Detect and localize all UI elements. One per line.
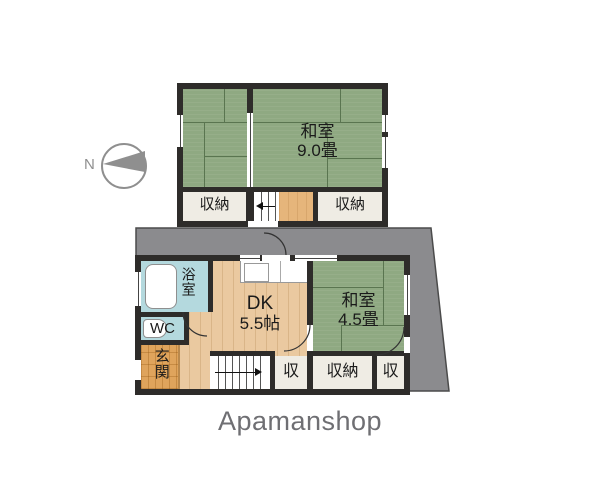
floor2-hall bbox=[279, 192, 313, 221]
floor1-window-top-a bbox=[240, 255, 260, 261]
mat-line bbox=[340, 89, 341, 122]
floor1-dk-size: 5.5帖 bbox=[220, 314, 300, 333]
floor1-window-top-b bbox=[295, 255, 337, 261]
floor2-window-left bbox=[177, 115, 183, 147]
floor1-window-left bbox=[135, 272, 141, 306]
mat-line bbox=[183, 122, 247, 123]
stairs-direction-arrow bbox=[255, 368, 262, 376]
wc-right-wall bbox=[184, 312, 189, 345]
floor2-storage-left-label: 収納 bbox=[183, 197, 246, 214]
kitchen-sink-icon bbox=[244, 263, 269, 282]
floor2-plan: 和室 9.0畳 収納 収納 bbox=[177, 83, 388, 227]
floor1-dk-label: DK 5.5帖 bbox=[220, 293, 300, 333]
compass-circle bbox=[102, 144, 146, 188]
bath-wall bbox=[208, 261, 213, 312]
entrance-door-arc bbox=[264, 233, 286, 255]
floor1-door-top-gap bbox=[262, 255, 290, 261]
floor1-entry-door-gap bbox=[135, 360, 141, 380]
floor1-washitsu-label: 和室 4.5畳 bbox=[313, 291, 404, 329]
floor1-storage-right-label: 収 bbox=[377, 363, 404, 381]
wall bbox=[246, 192, 254, 221]
mat-line bbox=[204, 156, 247, 157]
stair-step bbox=[275, 192, 276, 221]
floor1-storage-center-label: 収納 bbox=[313, 363, 372, 381]
floor1-dk-name: DK bbox=[220, 293, 300, 314]
floor1-washitsu-name: 和室 bbox=[313, 291, 404, 310]
floor2-stairs bbox=[254, 192, 279, 221]
floor1-wc-label: WC bbox=[141, 321, 184, 338]
floor1-right-opening bbox=[404, 337, 410, 353]
floor1-stairs bbox=[210, 356, 270, 389]
window-divider bbox=[382, 132, 388, 137]
brand-logo: Apamanshop bbox=[0, 406, 600, 437]
floor2-tatami-left bbox=[183, 89, 247, 187]
counter-divider bbox=[280, 261, 281, 282]
floor2-stair-opening bbox=[248, 221, 278, 227]
mat-line bbox=[224, 89, 225, 122]
bathtub-icon bbox=[145, 264, 177, 309]
floor2-storage-right-label: 収納 bbox=[318, 197, 382, 214]
compass-north-label: N bbox=[84, 156, 95, 173]
entrance-step-edge bbox=[178, 345, 180, 389]
mat-line bbox=[204, 122, 205, 187]
floor1-window-right bbox=[404, 275, 410, 315]
floor1-bath-label: 浴室 bbox=[180, 267, 196, 297]
floor1-storage-left-label: 収 bbox=[275, 363, 307, 381]
floor2-room-size: 9.0畳 bbox=[253, 141, 382, 160]
mat-line bbox=[313, 287, 383, 288]
floor2-room-name: 和室 bbox=[253, 122, 382, 141]
compass-needle bbox=[103, 151, 145, 172]
floor1-washitsu-size: 4.5畳 bbox=[313, 310, 404, 329]
floor1-entrance-label: 玄関 bbox=[152, 348, 169, 380]
kitchen-counter-icon bbox=[240, 261, 307, 283]
floor2-window-right bbox=[382, 115, 388, 168]
floor2-room-label: 和室 9.0畳 bbox=[253, 122, 382, 160]
stairs-arrow-tail bbox=[263, 206, 275, 207]
floorplan-canvas: N 和室 9.0畳 bbox=[0, 0, 600, 480]
stairs-direction-arrow bbox=[256, 202, 263, 210]
floor1-plan: 浴室 WC 玄関 DK 5.5帖 和室 4.5畳 bbox=[135, 255, 410, 395]
stairs-arrow-tail bbox=[215, 372, 255, 373]
